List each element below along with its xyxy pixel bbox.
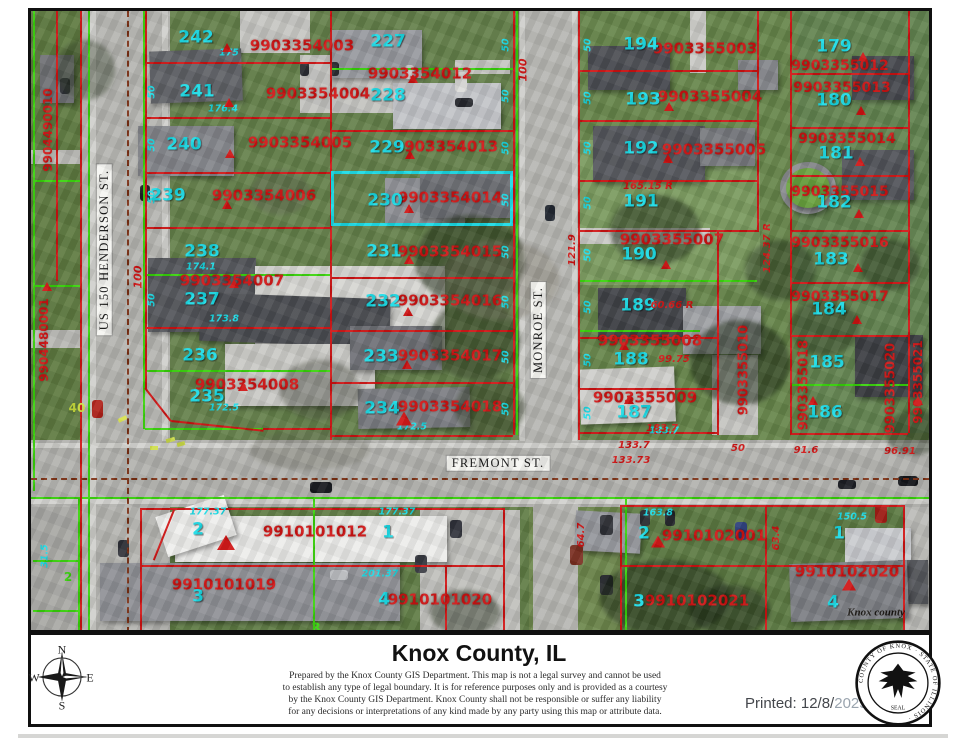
parcel-line-red	[790, 433, 908, 435]
road-surface	[31, 499, 929, 504]
dimension-label: 50	[501, 350, 511, 363]
parcel-marker-icon	[42, 279, 52, 291]
map-title: Knox County, IL	[329, 640, 629, 667]
road-surface	[90, 11, 96, 633]
parcel-line-red	[56, 11, 58, 281]
parcel-line-red	[578, 70, 757, 72]
dimension-label: 50	[583, 248, 593, 261]
lot-number-label: 1	[382, 525, 394, 542]
parcel-line-red	[790, 127, 908, 129]
grass-patch	[31, 507, 80, 633]
dimension-label: 50	[501, 245, 511, 258]
disclaimer-line: to establish any type of legal boundary.…	[274, 682, 676, 694]
building-footprint	[393, 83, 501, 129]
frame-left	[28, 8, 31, 727]
lot-number-label: 228	[370, 88, 406, 105]
vehicle	[545, 205, 555, 221]
lot-number-label: 184	[811, 302, 847, 319]
lot-number-label: 232	[365, 294, 401, 311]
lot-number-label: 241	[179, 84, 215, 101]
parcel-number-label: 9910101019	[172, 578, 276, 593]
lot-number-label: 185	[809, 355, 845, 372]
frame-top	[28, 8, 932, 11]
dimension-label: 100	[133, 266, 144, 289]
county-seal-icon: COUNTY OF KNOX · STATE OF ILLINOIS · SEA…	[854, 639, 942, 727]
parcel-number-label: 9904480001	[38, 298, 50, 382]
road-centerline	[31, 478, 929, 480]
dimension-label: 50	[583, 91, 593, 104]
compass-s-label: S	[59, 699, 66, 714]
vehicle	[570, 545, 583, 565]
vehicle	[450, 520, 462, 538]
parcel-marker-icon	[222, 40, 232, 52]
lot-number-label: 186	[807, 405, 843, 422]
frame-right	[929, 8, 932, 727]
vehicle	[600, 515, 613, 535]
parcel-line-green	[33, 610, 80, 612]
parcel-marker-icon	[661, 257, 671, 269]
parcel-line-green	[31, 497, 929, 499]
frame-bottom	[28, 724, 932, 727]
compass-n-label: N	[58, 643, 67, 658]
dimension-label: 50	[501, 193, 511, 206]
lot-number-label: 187	[616, 405, 652, 422]
map-sheet: 9903354003990335400499033540059903354006…	[0, 0, 960, 742]
dimension-label: 133.73	[612, 456, 651, 466]
parcel-number-label: 9903355020	[885, 343, 898, 433]
dimension-label: 133.7	[618, 441, 650, 451]
dimension-label: 100	[518, 59, 529, 82]
parcel-number-label: 9903354004	[266, 87, 370, 102]
parcel-marker-icon	[404, 201, 414, 213]
parcel-marker-icon	[624, 392, 634, 404]
parcel-line-red	[790, 230, 908, 232]
parcel-line-green	[145, 370, 330, 372]
dimension-label: 64.7	[577, 523, 587, 548]
dimension-label: 50	[501, 402, 511, 415]
street-name-label: MONROE ST.	[531, 282, 546, 378]
parcel-marker-icon	[842, 576, 856, 591]
lot-number-label: 230	[367, 193, 403, 210]
parcel-line-red	[578, 11, 580, 440]
printed-date: Printed: 12/8/2025	[745, 695, 868, 712]
pavement-mark	[150, 446, 158, 450]
street-name-label: US 150 HENDERSON ST.	[97, 165, 112, 336]
parcel-line-green	[33, 11, 35, 491]
parcel-line-red	[140, 508, 142, 632]
parcel-line-red	[765, 505, 767, 633]
dimension-label: 63.4	[772, 526, 782, 551]
title-block-separator	[28, 630, 932, 635]
dimension-label: 121.9	[568, 234, 578, 266]
parcel-number-label: 9904490010	[42, 88, 54, 172]
parcel-line-red	[80, 11, 82, 633]
parcel-marker-icon	[229, 276, 239, 288]
lot-number-label: 231	[366, 244, 402, 261]
parcel-number-label: 9910102021	[645, 594, 749, 609]
parcel-line-red	[263, 428, 332, 430]
dimension-label: 50	[147, 138, 157, 151]
parcel-marker-icon	[217, 532, 235, 550]
disclaimer-text: Prepared by the Knox County GIS Departme…	[274, 670, 676, 718]
lot-number-label: 234	[364, 401, 400, 418]
parcel-marker-icon	[808, 393, 818, 405]
dimension-label: 183.7	[646, 424, 678, 434]
parcel-line-red	[145, 327, 330, 329]
parcel-line-red	[332, 435, 513, 437]
parcel-marker-icon	[913, 393, 923, 405]
dimension-label: 174.1	[186, 262, 216, 272]
parcel-marker-icon	[408, 71, 418, 83]
parcel-line-red	[790, 335, 908, 337]
parcel-line-red	[145, 117, 330, 119]
lot-number-label: 233	[363, 349, 399, 366]
dimension-label: 60.66 R	[651, 301, 694, 311]
dimension-label: 50	[583, 300, 593, 313]
dimension-label: 50	[583, 141, 593, 154]
dimension-label: 50	[147, 190, 157, 203]
seal-word: SEAL	[891, 705, 906, 711]
dimension-label: 50	[501, 38, 511, 51]
parcel-line-red	[620, 505, 622, 633]
dimension-label: 50	[583, 406, 593, 419]
parcel-number-label: 9910101012	[263, 525, 367, 540]
lot-number-label: 242	[178, 30, 214, 47]
parcel-line-red	[145, 227, 330, 229]
parcel-line-red	[757, 11, 759, 232]
parcel-marker-icon	[651, 533, 665, 548]
parcel-line-green	[33, 285, 80, 287]
lot-number-label: 227	[370, 34, 406, 51]
vehicle	[455, 98, 473, 107]
lot-number-label: 188	[613, 352, 649, 369]
dimension-label: 50	[501, 295, 511, 308]
parcel-marker-icon	[854, 206, 864, 218]
parcel-line-red	[908, 11, 910, 433]
parcel-line-red	[145, 172, 330, 174]
parcel-marker-icon	[225, 146, 235, 158]
dimension-label: 150.5	[837, 512, 867, 522]
parcel-marker-icon	[404, 252, 414, 264]
dimension-label: 31.5	[40, 544, 50, 567]
map-annotation: 40	[69, 402, 86, 414]
vehicle	[310, 482, 332, 493]
parcel-marker-icon	[853, 260, 863, 272]
parcel-line-red	[513, 11, 515, 435]
parcel-number-label: 9903354012	[368, 67, 472, 82]
vehicle	[415, 555, 427, 573]
parcel-number-label: 9903354018	[398, 400, 502, 415]
parcel-number-label: 9903355012	[791, 59, 888, 73]
lot-number-label: 193	[625, 92, 661, 109]
disclaimer-line: Prepared by the Knox County GIS Departme…	[274, 670, 676, 682]
lot-number-label: 4	[827, 595, 839, 612]
dimension-label: 163.8	[643, 508, 673, 518]
parcel-number-label: 9903354017	[398, 349, 502, 364]
lot-number-label: 182	[816, 195, 852, 212]
dimension-label: 50	[147, 85, 157, 98]
dimension-label: 99.75	[658, 355, 690, 365]
parcel-number-label: 9903354005	[248, 136, 352, 151]
dimension-label: 50	[501, 89, 511, 102]
parcel-number-label: 9903355005	[662, 143, 766, 158]
lot-number-label: 3	[192, 589, 204, 606]
parcel-line-red	[332, 130, 513, 132]
parcel-line-red	[790, 175, 908, 177]
parcel-marker-icon	[663, 151, 673, 163]
parcel-marker-icon	[619, 338, 629, 350]
parcel-marker-icon	[402, 357, 412, 369]
parcel-line-red	[790, 282, 908, 284]
dimension-label: 172.5	[209, 403, 239, 413]
parcel-marker-icon	[396, 409, 412, 426]
dimension-label: 50	[583, 196, 593, 209]
parcel-line-red	[145, 62, 330, 64]
parcel-marker-icon	[403, 304, 413, 316]
printed-date-label: Printed: 12/8/	[745, 695, 834, 712]
parcel-number-label: 9910102001	[662, 529, 766, 544]
parcel-line-red	[140, 565, 505, 567]
lot-number-label: 192	[623, 141, 659, 158]
lot-number-label: 180	[816, 93, 852, 110]
dimension-label: 201.37	[362, 569, 399, 579]
lot-number-label: 179	[816, 39, 852, 56]
vehicle	[300, 62, 309, 76]
lot-number-label: 2	[192, 522, 204, 539]
road-surface	[572, 11, 577, 441]
map-annotation: 2	[64, 571, 72, 583]
dimension-label: 91.6	[794, 446, 819, 456]
vehicle	[330, 570, 348, 580]
disclaimer-line: for any decisions or interpretations of …	[274, 706, 676, 718]
lot-number-label: 183	[813, 252, 849, 269]
lot-number-label: 190	[621, 247, 657, 264]
parcel-number-label: 9903354003	[250, 39, 354, 54]
lot-number-label: 4	[378, 592, 390, 609]
parcel-line-red	[332, 277, 513, 279]
dimension-label: 96.91	[884, 447, 916, 457]
dimension-label: 177.37	[379, 507, 416, 517]
dimension-label: 177.37	[190, 507, 227, 517]
parcel-marker-icon	[852, 312, 862, 324]
dimension-label: 50	[583, 353, 593, 366]
parcel-number-label: 9903355016	[791, 236, 888, 250]
lot-number-label: 3	[633, 594, 645, 611]
parcel-line-red	[578, 120, 757, 122]
parcel-marker-icon	[224, 95, 234, 107]
lot-number-label: 1	[833, 526, 845, 543]
parcel-number-label: 9903355021	[912, 340, 924, 424]
lot-number-label: 229	[369, 140, 405, 157]
dimension-label: 165.15 R	[623, 182, 673, 192]
parcel-marker-icon	[222, 197, 232, 209]
dimension-label: 50	[147, 293, 157, 306]
compass-e-label: E	[86, 671, 93, 686]
lot-number-label: 194	[623, 37, 659, 54]
disclaimer-line: by the Knox County GIS Department. Knox …	[274, 694, 676, 706]
road-centerline	[127, 11, 129, 633]
parcel-line-red	[717, 230, 719, 435]
dimension-label: 50	[583, 38, 593, 51]
parcel-number-label: 9903355003	[653, 42, 757, 57]
lot-number-label: 236	[182, 348, 218, 365]
parcel-marker-icon	[405, 147, 415, 159]
street-name-label: FREMONT ST.	[447, 456, 550, 471]
vehicle	[838, 480, 856, 489]
dimension-label: 50	[731, 444, 745, 454]
vehicle	[92, 400, 103, 418]
scan-edge-shadow	[18, 734, 948, 738]
lot-number-label: 2	[638, 526, 650, 543]
dimension-label: 50	[501, 141, 511, 154]
parcel-marker-icon	[664, 99, 674, 111]
parcel-number-label: 9903354016	[398, 294, 502, 309]
vehicle	[875, 505, 887, 523]
parcel-line-green	[578, 280, 757, 282]
parcel-number-label: 9903355010	[738, 325, 751, 415]
parcel-line-green	[88, 11, 90, 633]
lot-number-label: 181	[818, 146, 854, 163]
tree-canopy	[55, 40, 115, 100]
parcel-number-label: 9910101020	[388, 593, 492, 608]
lot-number-label: 238	[184, 244, 220, 261]
parcel-marker-icon	[855, 154, 865, 166]
map-annotation: Knox county	[847, 608, 905, 619]
dimension-label: 124.37 R	[763, 223, 773, 273]
parcel-line-red	[332, 330, 513, 332]
parcel-line-red	[503, 508, 505, 632]
lot-number-label: 237	[184, 292, 220, 309]
parcel-marker-icon	[238, 379, 248, 391]
road-surface	[533, 500, 578, 633]
compass-w-label: W	[28, 671, 39, 686]
lot-number-label: 191	[623, 194, 659, 211]
dimension-label: 173.8	[209, 314, 239, 324]
lot-number-label: 240	[166, 137, 202, 154]
parcel-marker-icon	[858, 49, 868, 61]
parcel-marker-icon	[856, 103, 866, 115]
parcel-line-red	[332, 382, 513, 384]
parcel-number-label: 9903355008	[598, 334, 702, 349]
